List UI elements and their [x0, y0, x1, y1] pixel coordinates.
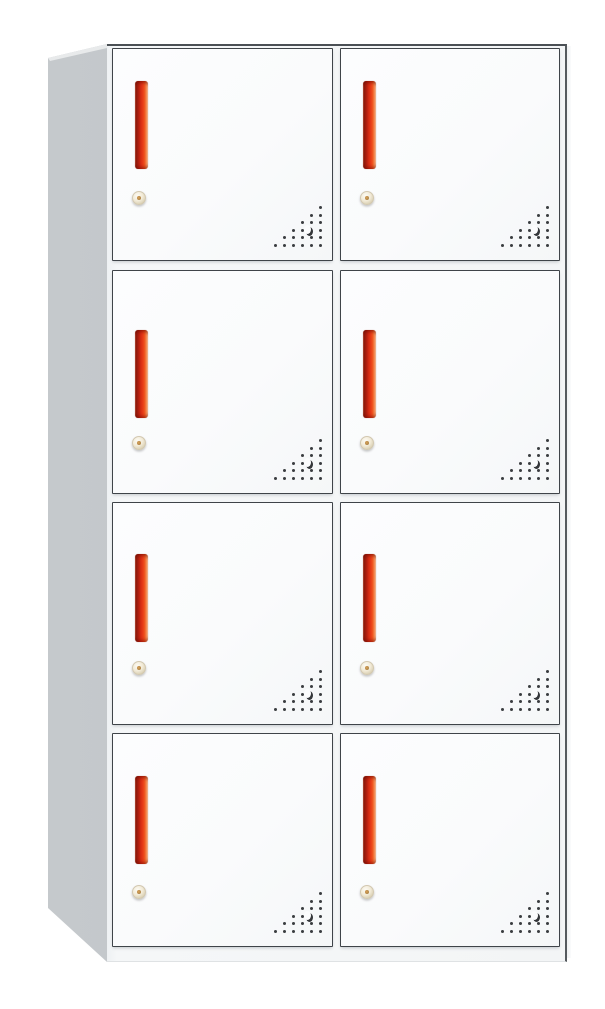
- vent-dot: [528, 693, 531, 696]
- vent-dot: [546, 244, 549, 247]
- vent-dot: [519, 915, 522, 918]
- vent-dot: [310, 922, 313, 925]
- vent-dot: [546, 454, 549, 457]
- vent-dot: [301, 685, 304, 688]
- vent-dot: [310, 244, 313, 247]
- vent-dot: [319, 900, 322, 903]
- vent-dot: [319, 708, 322, 711]
- keyhole-lock-icon[interactable]: [360, 661, 374, 675]
- vent-dot: [283, 477, 286, 480]
- vent-holes-icon: [274, 206, 322, 248]
- vent-dot: [319, 678, 322, 681]
- vent-dot: [292, 229, 295, 232]
- locker-door[interactable]: [112, 48, 333, 261]
- vent-dot: [283, 922, 286, 925]
- vent-dot: [319, 915, 322, 918]
- vent-dot: [319, 892, 322, 895]
- vent-dot: [528, 685, 531, 688]
- vent-dot: [301, 236, 304, 239]
- locker-door[interactable]: [112, 502, 333, 725]
- keyhole-lock-icon[interactable]: [360, 436, 374, 450]
- vent-dot: [519, 708, 522, 711]
- vent-dot: [310, 214, 313, 217]
- vent-dot: [310, 930, 313, 933]
- vent-dot: [501, 708, 504, 711]
- vent-dot: [510, 922, 513, 925]
- vent-dot: [292, 244, 295, 247]
- vent-dot: [537, 236, 540, 239]
- vent-crescent-hole: [306, 691, 313, 700]
- vent-dot: [519, 236, 522, 239]
- vent-dot: [310, 708, 313, 711]
- vent-dot: [319, 244, 322, 247]
- door-handle-icon[interactable]: [363, 330, 376, 418]
- vent-dot: [292, 693, 295, 696]
- vent-dot: [319, 922, 322, 925]
- vent-dot: [292, 462, 295, 465]
- vent-dot: [546, 900, 549, 903]
- vent-dot: [528, 700, 531, 703]
- vent-dot: [319, 685, 322, 688]
- vent-dot: [292, 469, 295, 472]
- vent-dot: [537, 930, 540, 933]
- locker-door[interactable]: [340, 733, 560, 947]
- vent-dot: [519, 469, 522, 472]
- vent-dot: [310, 469, 313, 472]
- vent-dot: [274, 708, 277, 711]
- vent-dot: [519, 462, 522, 465]
- vent-dot: [537, 900, 540, 903]
- vent-dot: [274, 477, 277, 480]
- vent-dot: [546, 930, 549, 933]
- vent-crescent-hole: [306, 227, 313, 236]
- locker-door[interactable]: [340, 502, 560, 725]
- vent-dot: [274, 244, 277, 247]
- vent-dot: [301, 922, 304, 925]
- vent-dot: [301, 454, 304, 457]
- vent-dot: [310, 907, 313, 910]
- keyhole-lock-icon[interactable]: [132, 661, 146, 675]
- vent-dot: [301, 930, 304, 933]
- vent-dot: [528, 229, 531, 232]
- vent-dot: [292, 922, 295, 925]
- vent-dot: [283, 244, 286, 247]
- vent-dot: [274, 930, 277, 933]
- vent-dot: [546, 670, 549, 673]
- vent-dot: [292, 930, 295, 933]
- vent-dot: [301, 477, 304, 480]
- vent-dot: [528, 915, 531, 918]
- vent-dot: [283, 708, 286, 711]
- vent-dot: [546, 693, 549, 696]
- vent-dot: [537, 907, 540, 910]
- vent-dot: [319, 469, 322, 472]
- vent-dot: [310, 900, 313, 903]
- vent-dot: [292, 915, 295, 918]
- vent-holes-icon: [274, 439, 322, 481]
- vent-dot: [310, 678, 313, 681]
- door-handle-icon[interactable]: [363, 81, 376, 169]
- keyhole-lock-icon[interactable]: [360, 191, 374, 205]
- vent-dot: [319, 670, 322, 673]
- vent-dot: [546, 700, 549, 703]
- vent-dot: [510, 930, 513, 933]
- vent-dot: [546, 678, 549, 681]
- vent-dot: [301, 462, 304, 465]
- vent-dot: [301, 708, 304, 711]
- vent-dot: [546, 462, 549, 465]
- vent-dot: [319, 477, 322, 480]
- vent-dot: [301, 221, 304, 224]
- vent-dot: [310, 236, 313, 239]
- vent-holes-icon: [274, 670, 322, 712]
- vent-holes-icon: [501, 206, 549, 248]
- vent-dot: [528, 454, 531, 457]
- vent-dot: [319, 439, 322, 442]
- vent-dot: [537, 447, 540, 450]
- vent-dot: [319, 454, 322, 457]
- vent-dot: [292, 477, 295, 480]
- vent-dot: [319, 907, 322, 910]
- keyhole-lock-icon[interactable]: [132, 436, 146, 450]
- vent-dot: [546, 206, 549, 209]
- vent-dot: [501, 244, 504, 247]
- vent-dot: [528, 930, 531, 933]
- vent-dot: [319, 214, 322, 217]
- door-handle-icon[interactable]: [135, 330, 148, 418]
- vent-dot: [537, 477, 540, 480]
- vent-dot: [537, 214, 540, 217]
- vent-dot: [283, 930, 286, 933]
- vent-dot: [301, 700, 304, 703]
- vent-crescent-hole: [533, 913, 540, 922]
- locker-door[interactable]: [112, 270, 333, 494]
- vent-dot: [510, 236, 513, 239]
- vent-crescent-hole: [533, 460, 540, 469]
- vent-dot: [546, 477, 549, 480]
- vent-dot: [537, 708, 540, 711]
- vent-dot: [537, 454, 540, 457]
- vent-dot: [546, 922, 549, 925]
- vent-dot: [546, 685, 549, 688]
- vent-dot: [546, 708, 549, 711]
- vent-dot: [519, 700, 522, 703]
- keyhole-lock-icon[interactable]: [132, 191, 146, 205]
- vent-dot: [510, 708, 513, 711]
- vent-dot: [319, 236, 322, 239]
- vent-dot: [319, 462, 322, 465]
- vent-dot: [292, 236, 295, 239]
- vent-dot: [546, 469, 549, 472]
- vent-dot: [546, 221, 549, 224]
- vent-crescent-hole: [533, 227, 540, 236]
- vent-dot: [537, 244, 540, 247]
- vent-dot: [546, 892, 549, 895]
- vent-crescent-hole: [306, 460, 313, 469]
- vent-dot: [301, 693, 304, 696]
- vent-dot: [319, 206, 322, 209]
- vent-dot: [537, 700, 540, 703]
- vent-dot: [528, 236, 531, 239]
- vent-dot: [301, 915, 304, 918]
- vent-dot: [537, 221, 540, 224]
- vent-dot: [510, 700, 513, 703]
- locker-door[interactable]: [340, 270, 560, 494]
- vent-dot: [546, 915, 549, 918]
- vent-dot: [546, 439, 549, 442]
- vent-dot: [301, 907, 304, 910]
- vent-dot: [310, 477, 313, 480]
- vent-dot: [537, 678, 540, 681]
- vent-dot: [528, 477, 531, 480]
- door-handle-icon[interactable]: [363, 554, 376, 642]
- vent-dot: [528, 221, 531, 224]
- vent-dot: [501, 477, 504, 480]
- vent-dot: [310, 700, 313, 703]
- door-handle-icon[interactable]: [135, 776, 148, 864]
- vent-dot: [283, 469, 286, 472]
- vent-dot: [501, 930, 504, 933]
- vent-dot: [537, 922, 540, 925]
- cabinet-right-edge: [567, 46, 571, 958]
- vent-dot: [519, 922, 522, 925]
- vent-dot: [319, 700, 322, 703]
- vent-dot: [301, 469, 304, 472]
- vent-dot: [519, 477, 522, 480]
- door-handle-icon[interactable]: [135, 81, 148, 169]
- vent-dot: [519, 930, 522, 933]
- vent-dot: [519, 229, 522, 232]
- vent-dot: [528, 708, 531, 711]
- vent-holes-icon: [501, 892, 549, 934]
- vent-dot: [319, 229, 322, 232]
- vent-dot: [301, 229, 304, 232]
- vent-dot: [510, 244, 513, 247]
- vent-dot: [546, 229, 549, 232]
- vent-dot: [546, 214, 549, 217]
- vent-dot: [537, 685, 540, 688]
- vent-dot: [283, 236, 286, 239]
- vent-dot: [528, 907, 531, 910]
- vent-dot: [319, 447, 322, 450]
- vent-dot: [301, 244, 304, 247]
- vent-dot: [519, 244, 522, 247]
- vent-crescent-hole: [306, 913, 313, 922]
- vent-dot: [528, 922, 531, 925]
- vent-dot: [310, 221, 313, 224]
- vent-dot: [283, 700, 286, 703]
- vent-dot: [292, 708, 295, 711]
- vent-dot: [546, 907, 549, 910]
- locker-door[interactable]: [112, 733, 333, 947]
- vent-dot: [319, 693, 322, 696]
- vent-crescent-hole: [533, 691, 540, 700]
- vent-dot: [546, 236, 549, 239]
- vent-dot: [519, 693, 522, 696]
- vent-dot: [537, 469, 540, 472]
- vent-holes-icon: [274, 892, 322, 934]
- vent-dot: [510, 469, 513, 472]
- keyhole-lock-icon[interactable]: [360, 885, 374, 899]
- keyhole-lock-icon[interactable]: [132, 885, 146, 899]
- vent-dot: [546, 447, 549, 450]
- door-handle-icon[interactable]: [363, 776, 376, 864]
- vent-dot: [528, 244, 531, 247]
- vent-dot: [310, 454, 313, 457]
- vent-dot: [510, 477, 513, 480]
- cabinet-front: [107, 44, 567, 962]
- vent-dot: [310, 685, 313, 688]
- vent-dot: [528, 469, 531, 472]
- vent-dot: [310, 447, 313, 450]
- door-handle-icon[interactable]: [135, 554, 148, 642]
- vent-dot: [528, 462, 531, 465]
- locker-cabinet: [0, 0, 605, 1009]
- vent-holes-icon: [501, 670, 549, 712]
- vent-holes-icon: [501, 439, 549, 481]
- vent-dot: [319, 221, 322, 224]
- locker-door[interactable]: [340, 48, 560, 261]
- vent-dot: [319, 930, 322, 933]
- vent-dot: [292, 700, 295, 703]
